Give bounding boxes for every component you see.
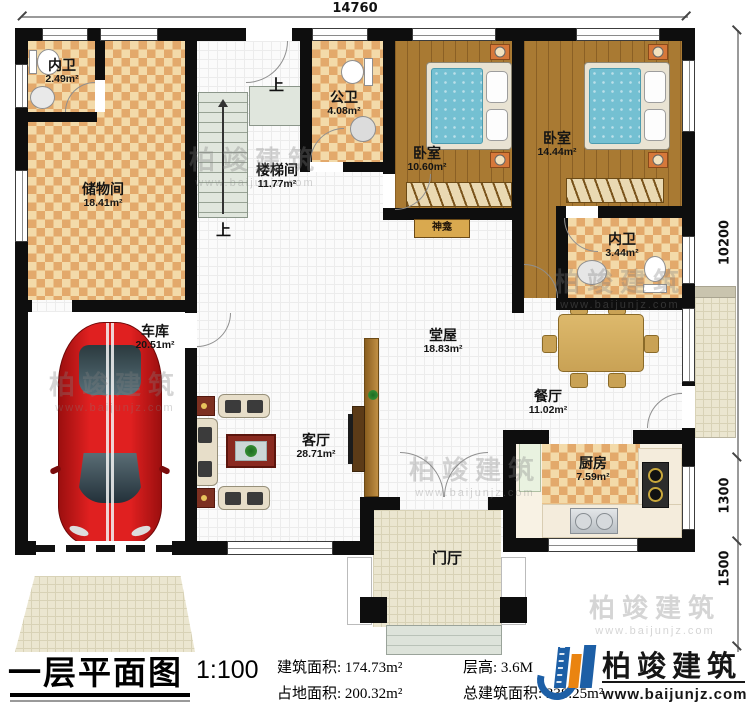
room-label-kitchen: 厨房 7.59m² xyxy=(576,456,609,483)
stat-label: 占地面积: xyxy=(277,686,341,702)
nightstand xyxy=(648,152,668,168)
room-label-bedroom-2: 卧室 14.44m² xyxy=(537,131,576,158)
room-label-living-room: 客厅 28.71m² xyxy=(296,433,335,460)
wall xyxy=(300,40,312,168)
wall xyxy=(503,430,516,552)
floor-entry-porch xyxy=(373,510,501,627)
floorplan-page: { "plan": { "rooms": [ {"name": "内卫", "a… xyxy=(0,0,750,713)
window xyxy=(15,64,28,108)
stair-arrow-line xyxy=(222,106,224,214)
room-name: 公卫 xyxy=(327,90,360,106)
stat-label: 总建筑面积: xyxy=(463,686,542,702)
watermark-name: 柏竣建筑 xyxy=(589,588,721,625)
room-area: 11.02m² xyxy=(529,405,568,417)
bed-1-pillow xyxy=(486,71,508,103)
stat-value: 200.32m² xyxy=(345,686,402,702)
door-opening xyxy=(383,174,395,208)
sofa-cushion xyxy=(198,427,212,443)
stat-floor-height: 层高: 3.6M xyxy=(463,656,533,677)
window xyxy=(15,170,28,242)
wall xyxy=(488,497,516,510)
toilet-bowl-ensuite xyxy=(644,256,666,282)
room-name: 客厅 xyxy=(296,433,335,449)
room-name: 储物间 xyxy=(82,182,124,198)
stat-building-area: 建筑面积: 174.73m² xyxy=(277,656,402,677)
bed-2-mattress xyxy=(589,68,641,144)
door-opening xyxy=(95,80,105,112)
window xyxy=(682,308,695,382)
dim-top-value: 14760 xyxy=(329,1,380,16)
wall xyxy=(383,28,395,174)
window xyxy=(576,28,660,41)
bed-2-pillow xyxy=(644,71,666,103)
room-area: 4.08m² xyxy=(327,106,360,118)
room-label-public-bath: 公卫 4.08m² xyxy=(327,90,360,117)
toilet-bowl-bath2 xyxy=(341,60,364,84)
dim-right-upper-value: 10200 xyxy=(718,213,733,273)
dim-right-middle-value: 1300 xyxy=(718,466,733,526)
room-label-garage: 车库 20.51m² xyxy=(135,324,174,351)
tv-partition-wall xyxy=(364,338,379,497)
car-racing-stripe xyxy=(106,323,114,545)
plant-icon xyxy=(245,445,257,457)
toilet-tank-bath1 xyxy=(29,50,37,74)
car-headlight xyxy=(130,524,152,538)
room-name: 内卫 xyxy=(45,58,78,74)
room-name: 卧室 xyxy=(537,131,576,147)
car-headlight xyxy=(68,524,90,538)
sofa-cushion xyxy=(198,461,212,477)
title-underline-2 xyxy=(10,700,190,702)
room-name: 车库 xyxy=(135,324,174,340)
porch-steps xyxy=(386,625,502,655)
sink-ensuite xyxy=(577,260,607,285)
room-name: 餐厅 xyxy=(529,389,568,405)
dining-table xyxy=(558,314,644,372)
stairs-up-label: 上 xyxy=(216,219,231,240)
toilet-tank-bath2 xyxy=(364,58,373,86)
room-area: 20.51m² xyxy=(135,340,174,352)
sofa-cushion xyxy=(225,492,241,505)
nightstand xyxy=(490,152,510,168)
wall xyxy=(360,497,374,555)
logo-icon xyxy=(537,643,599,709)
wall xyxy=(185,28,197,313)
window xyxy=(100,28,158,41)
nightstand xyxy=(490,44,510,60)
window xyxy=(227,541,333,555)
plant-icon xyxy=(368,390,378,400)
kitchen-sink xyxy=(570,508,618,534)
burner-icon xyxy=(648,468,663,483)
sofa-bottom xyxy=(218,486,270,510)
car xyxy=(58,322,162,546)
dining-chair xyxy=(570,373,588,388)
room-area: 28.71m² xyxy=(296,449,335,461)
room-name: 卧室 xyxy=(407,146,446,162)
room-label-ensuite-bath: 内卫 3.44m² xyxy=(605,232,638,259)
door-opening xyxy=(310,162,343,172)
wall xyxy=(633,430,683,444)
plan-scale: 1:100 xyxy=(196,656,259,685)
garage-door-dashed xyxy=(36,545,172,552)
room-name: 厨房 xyxy=(576,456,609,472)
tv-cabinet xyxy=(352,406,365,472)
room-name: 楼梯间 xyxy=(256,163,298,179)
dining-chair xyxy=(542,335,557,353)
room-label-dining-room: 餐厅 11.02m² xyxy=(529,389,568,416)
room-label-storage: 储物间 18.41m² xyxy=(82,182,124,209)
window xyxy=(42,28,88,41)
plan-title: 一层平面图 xyxy=(8,646,183,694)
stat-label: 建筑面积: xyxy=(277,660,341,676)
room-area: 7.59m² xyxy=(576,472,609,484)
dim-line-right xyxy=(737,30,739,652)
wall xyxy=(503,430,549,444)
room-label-bedroom-1: 卧室 10.60m² xyxy=(407,146,446,173)
sofa-cushion xyxy=(247,492,263,505)
dining-chair xyxy=(644,335,659,353)
stat-value: 174.73m² xyxy=(345,660,402,676)
shrine-shelf: 神龛 xyxy=(414,219,470,238)
window xyxy=(682,60,695,132)
title-underline xyxy=(10,693,190,697)
room-label-bath-1: 内卫 2.49m² xyxy=(45,58,78,85)
terrace-edge-band xyxy=(694,286,736,298)
bed-2 xyxy=(584,62,670,150)
wall xyxy=(185,348,197,555)
logo-tower xyxy=(580,645,597,688)
sink-bath2 xyxy=(350,116,376,142)
sofa-cushion xyxy=(247,400,263,413)
sofa-cushion xyxy=(225,400,241,413)
wall xyxy=(556,298,693,310)
room-label-main-hall: 堂屋 18.83m² xyxy=(423,328,462,355)
room-name: 堂屋 xyxy=(423,328,462,344)
room-label-entry-porch: 门厅 xyxy=(432,551,462,568)
window xyxy=(682,236,695,284)
stove xyxy=(642,462,669,508)
bed-1-pillow xyxy=(486,109,508,141)
terrace-door-opening xyxy=(682,386,695,428)
room-name: 内卫 xyxy=(605,232,638,248)
door-opening xyxy=(246,28,292,41)
toilet-tank-ensuite xyxy=(643,284,667,293)
room-name: 门厅 xyxy=(432,551,462,568)
wall xyxy=(72,300,197,312)
room-area: 2.49m² xyxy=(45,74,78,86)
door-opening xyxy=(566,206,598,218)
stairs-up-label: 上 xyxy=(269,74,284,95)
room-area: 18.83m² xyxy=(423,344,462,356)
tv-icon xyxy=(348,414,353,464)
terrace xyxy=(694,286,736,438)
driveway-ramp xyxy=(15,576,195,652)
burner-icon xyxy=(648,487,663,502)
dim-line-top xyxy=(22,16,688,18)
logo-company-name: 柏竣建筑 xyxy=(602,643,742,685)
stat-land-area: 占地面积: 200.32m² xyxy=(277,682,402,703)
wardrobe-bedroom-2 xyxy=(566,178,664,203)
bed-2-pillow xyxy=(644,109,666,141)
logo-divider xyxy=(602,681,745,683)
wall xyxy=(300,162,310,172)
sink-bath1 xyxy=(30,86,55,109)
sink-bowl-icon xyxy=(575,513,592,530)
room-area: 14.44m² xyxy=(537,147,576,159)
wall xyxy=(15,300,32,312)
stat-value: 3.6M xyxy=(501,660,533,676)
bed-1 xyxy=(426,62,512,150)
dim-right-lower-value: 1500 xyxy=(718,539,733,599)
porch-pillar xyxy=(360,597,387,623)
sink-bowl-icon xyxy=(596,513,613,530)
window xyxy=(412,28,496,41)
door-opening xyxy=(185,313,197,348)
logo-website: www.baijunjz.com xyxy=(602,686,747,703)
bed-1-mattress xyxy=(431,68,483,144)
wall xyxy=(598,206,693,218)
coffee-table-rug xyxy=(226,434,276,468)
dining-chair xyxy=(608,373,626,388)
watermark-url: www.baijunjz.com xyxy=(589,625,721,637)
stair-arrow-head xyxy=(218,99,228,107)
sofa-top xyxy=(218,394,270,418)
wall xyxy=(512,28,524,313)
window xyxy=(312,28,368,41)
porch-pillar xyxy=(500,597,527,623)
room-area: 3.44m² xyxy=(605,248,638,260)
room-label-stairwell: 楼梯间 11.77m² xyxy=(256,163,298,190)
window xyxy=(548,538,638,552)
room-area: 18.41m² xyxy=(82,198,124,210)
stat-label: 层高: xyxy=(463,660,497,676)
room-area: 11.77m² xyxy=(256,179,298,191)
wall xyxy=(373,497,400,510)
window xyxy=(682,466,695,530)
watermark: 柏竣建筑 www.baijunjz.com xyxy=(589,588,721,637)
nightstand xyxy=(648,44,668,60)
fridge xyxy=(519,442,541,492)
room-area: 10.60m² xyxy=(407,162,446,174)
wall xyxy=(15,112,97,122)
